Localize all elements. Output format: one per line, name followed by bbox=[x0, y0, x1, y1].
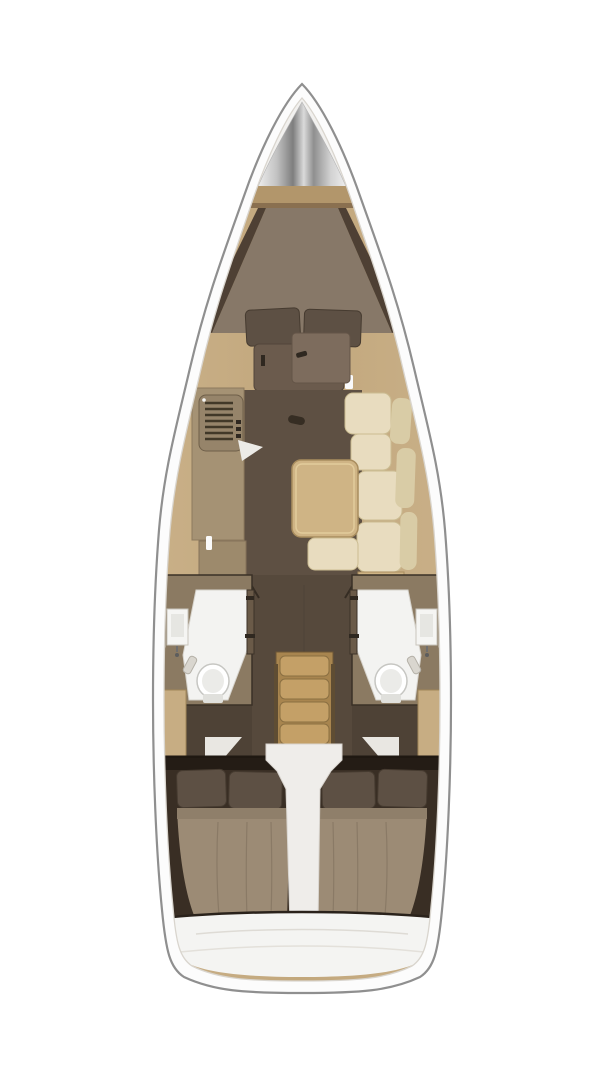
aft-cabin-port-bed bbox=[176, 769, 290, 920]
settee-cushion-mid bbox=[357, 471, 402, 520]
faucet-dot-port bbox=[175, 653, 179, 657]
sink-basin-port bbox=[171, 614, 184, 637]
settee-backrest-3 bbox=[399, 512, 417, 570]
aft-starboard-duvet bbox=[314, 808, 427, 920]
bow-trim-shadow bbox=[241, 203, 363, 208]
settee-cushion-aft bbox=[357, 522, 402, 572]
aft-starboard-duvet-seam bbox=[314, 808, 427, 819]
heads-port-latch bbox=[245, 634, 255, 638]
settee-bench-cushion bbox=[308, 538, 358, 570]
heads-starboard-hinge bbox=[350, 596, 358, 600]
aft-port-pillow-1 bbox=[176, 769, 226, 808]
chart-table bbox=[292, 333, 350, 383]
stove-grill-lines bbox=[205, 403, 233, 439]
toilet-starboard-bowl bbox=[380, 669, 402, 693]
faucet-dot-starboard bbox=[425, 653, 429, 657]
settee-backrest-2 bbox=[395, 448, 416, 509]
heads-starboard-latch bbox=[349, 634, 359, 638]
settee-backrest-1 bbox=[389, 397, 412, 444]
companionway-rail-starboard bbox=[331, 664, 335, 748]
floor-plan-canvas bbox=[0, 0, 604, 1080]
bow-trim-board bbox=[242, 186, 362, 204]
toilet-port-tank bbox=[203, 694, 223, 703]
settee-cushion-forward bbox=[345, 393, 391, 434]
aft-starboard-pillow-1 bbox=[322, 771, 376, 809]
aft-port-duvet-seam bbox=[177, 808, 290, 819]
yacht-floor-plan bbox=[0, 0, 604, 1080]
locker-latch bbox=[261, 355, 265, 366]
sink-basin-starboard bbox=[420, 614, 433, 637]
stern-transom bbox=[162, 912, 442, 977]
aft-cabin-starboard-bed bbox=[314, 769, 428, 920]
saloon-table bbox=[292, 460, 358, 537]
aft-port-duvet bbox=[177, 808, 290, 920]
heads-port-hinge bbox=[246, 596, 254, 600]
aft-port-pillow-2 bbox=[229, 771, 283, 809]
galley-handle-slit bbox=[206, 536, 212, 550]
toilet-starboard-tank bbox=[381, 694, 401, 703]
stove-knobs bbox=[236, 420, 241, 438]
stove-indicator-dot bbox=[202, 398, 206, 402]
companionway-rail-port bbox=[274, 664, 278, 748]
aft-starboard-pillow-2 bbox=[377, 769, 427, 808]
toilet-port-bowl bbox=[202, 669, 224, 693]
